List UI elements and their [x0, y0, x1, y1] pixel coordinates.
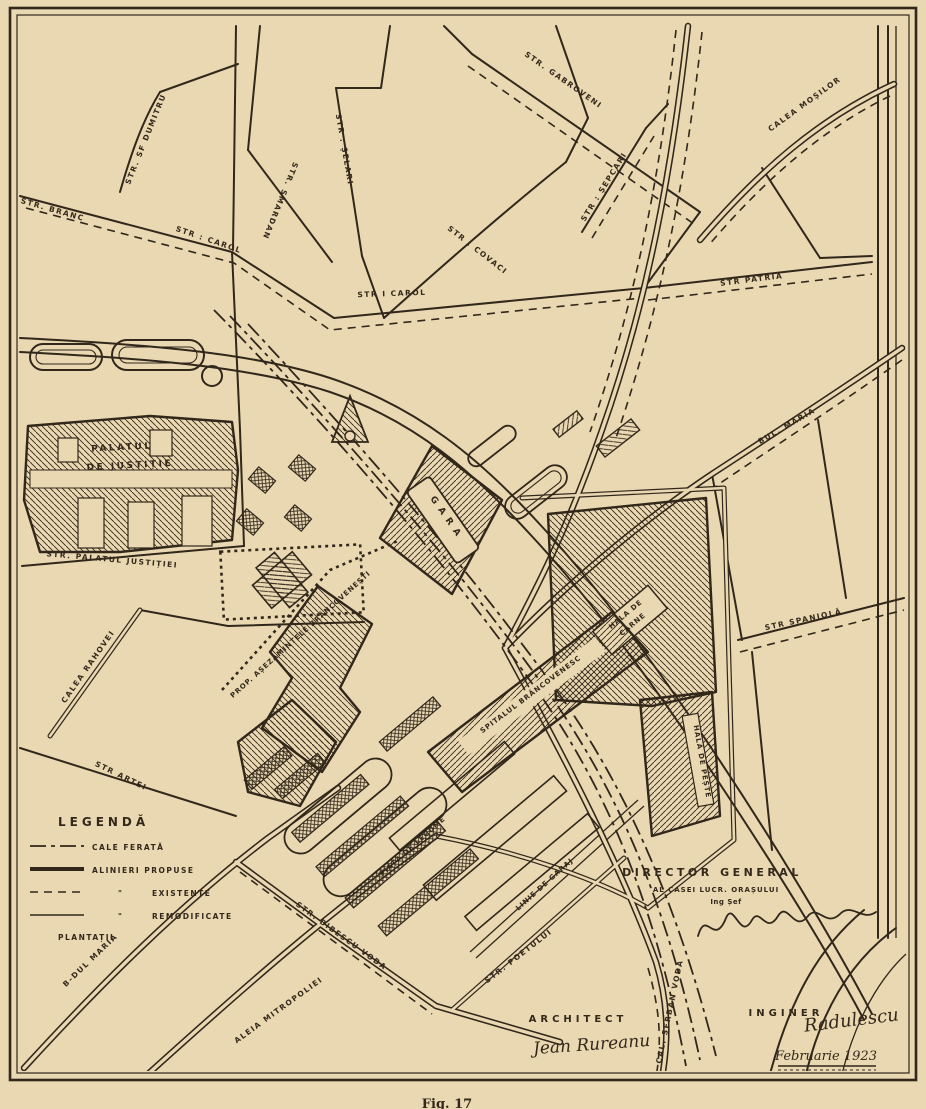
street-label-poetului: STR. POETULUI: [483, 927, 554, 985]
legend-ditto-existente: ": [118, 889, 123, 898]
city-plan-map: STR. BRANC STR. SF DUMITRU STR. SMARDAN …: [0, 0, 926, 1109]
street-label-selari: STR : ȘELARI: [334, 113, 355, 186]
architect-title: ARCHITECT: [529, 1014, 628, 1025]
street-label-gabroveni: STR. GABROVENI: [523, 50, 604, 110]
legend-title: LEGENDĂ: [58, 814, 149, 829]
market-label: PIAȚA DE LEGUME: [378, 815, 448, 879]
legend-item-existente: EXISTENTE: [152, 889, 211, 898]
street-label-sf-dumitru: STR. SF DUMITRU: [123, 92, 168, 185]
street-label-mosilor: CALEA MOȘILOR: [766, 75, 842, 134]
figure-caption: Fig. 17: [422, 1097, 472, 1109]
street-label-covaci: STR : COVACI: [446, 224, 510, 276]
legend-item-cale-ferata: CALE FERATĂ: [92, 843, 165, 852]
street-label-sepcari: STR : ȘEPCARI: [579, 150, 629, 223]
street-label-rahovei: CALEA RAHOVEI: [59, 628, 116, 704]
director-role: Ing Șef: [710, 898, 742, 906]
map-page: STR. BRANC STR. SF DUMITRU STR. SMARDAN …: [0, 0, 926, 1109]
legend: LEGENDĂ CALE FERATĂ ALINIERI PROPUSE " E…: [30, 814, 233, 943]
palace-of-justice: [24, 416, 238, 552]
director-subtitle: AL CASEI LUCR. ORAȘULUI: [653, 886, 779, 894]
credits-block: DIRECTOR GENERAL AL CASEI LUCR. ORAȘULUI…: [529, 866, 900, 1070]
plan-date: Februarie 1923: [774, 1049, 877, 1064]
street-label-artei: STR ARTEI: [94, 759, 149, 792]
legend-ditto-remodificate: ": [118, 912, 123, 921]
street-label-smardan: STR. SMARDAN: [261, 161, 300, 241]
legend-item-plantatii: PLANTAȚII: [58, 933, 114, 943]
street-label-bul-maria: BUL. MARIA: [756, 406, 817, 446]
street-label-carol: STR I CAROL: [357, 288, 426, 299]
street-label-spaniola: STR SPANIOLĂ: [764, 607, 843, 632]
director-title: DIRECTOR GENERAL: [622, 866, 802, 879]
legend-item-remodificate: REMODIFICATE: [152, 912, 233, 921]
legend-item-alinieri-propuse: ALINIERI PROPUSE: [92, 866, 195, 875]
